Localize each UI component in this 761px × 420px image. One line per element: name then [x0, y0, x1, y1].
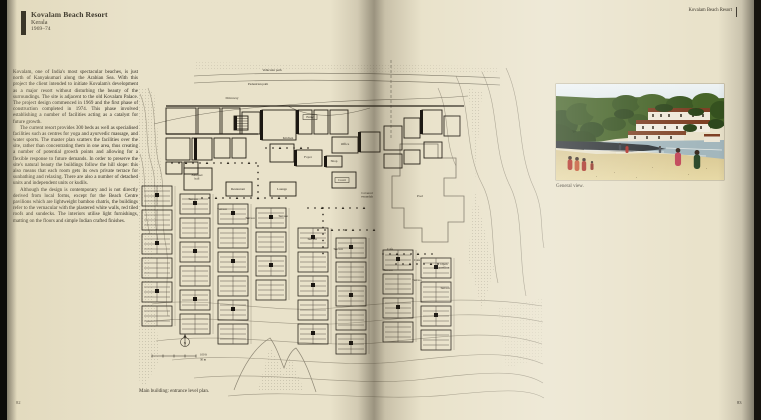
north-label: N [184, 341, 187, 345]
photo-person-figure [659, 146, 661, 153]
plan-label: Lounge [277, 187, 288, 191]
photo-person-figure [582, 158, 586, 171]
plan-label: pavilion [439, 266, 450, 270]
plan-label: Terrace [383, 268, 393, 272]
article-paragraph: Although the design is contemporary and … [13, 188, 138, 225]
site-plan-drawing: N 100 ft 30 m Vehicular pathPedestrian p… [138, 58, 550, 406]
title-accent-bar [21, 11, 26, 35]
plan-stipple-areas [138, 62, 544, 390]
header-rule [736, 7, 737, 17]
plan-label: hall [195, 177, 200, 181]
scale-metric-label: 30 m [200, 358, 207, 362]
plan-label: Terrace [440, 286, 450, 290]
plan-label: Foyer [304, 155, 313, 159]
right-page-number: 83 [737, 400, 742, 405]
plan-label: Terrace [278, 214, 288, 218]
photo-person-figure [619, 143, 621, 150]
north-arrow-icon: N [181, 334, 190, 347]
plan-label: Shop [331, 159, 338, 163]
general-view-photo [556, 84, 724, 180]
plan-label: verandah [361, 195, 373, 199]
plan-label: Pedestrian path [248, 82, 269, 86]
photo-person-figure [694, 150, 700, 169]
plan-label: Terrace [245, 216, 255, 220]
plan-label: Cafe [387, 247, 394, 251]
photo-person-figure [590, 161, 593, 170]
plan-label: Bar [343, 228, 349, 232]
plan-label: Terrace [188, 197, 198, 201]
article-paragraph: The current resort provides 300 beds as … [13, 126, 138, 188]
plan-label: Terrace [333, 247, 343, 251]
book-spread: Kovalam Beach Resort Kerala 1969–74 Kova… [0, 0, 761, 420]
plan-label: Terrace [217, 207, 227, 211]
project-title: Kovalam Beach Resort [31, 10, 108, 19]
right-edge-strip [754, 0, 761, 420]
plan-label: Terrace [412, 278, 422, 282]
photo-beach-pavilion [704, 136, 720, 142]
site-plan-svg: N 100 ft 30 m Vehicular pathPedestrian p… [138, 58, 550, 406]
plan-colonnade-dots [171, 147, 438, 265]
photo-pavilion-roof [704, 134, 720, 137]
project-location: Kerala [31, 19, 108, 26]
photo-scene [556, 84, 724, 180]
photo-person-figure [625, 144, 628, 153]
running-header: Kovalam Beach Resort [560, 8, 732, 13]
plan-label: Kitchen [283, 136, 294, 140]
photo-person-figure [575, 157, 580, 171]
plan-caption: Main building: entrance level plan. [139, 389, 209, 394]
left-edge-shadow [7, 0, 17, 420]
scale-bar: 100 ft 30 m [152, 353, 207, 362]
plan-label: Restaurant [231, 187, 245, 191]
plan-label: Pool [417, 194, 423, 198]
plan-label: Terrace [307, 237, 317, 241]
plan-labels: Vehicular pathPedestrian pathDrivewayEnt… [188, 68, 450, 290]
photo-caption: General view. [556, 184, 584, 189]
plan-label: Vehicular path [262, 68, 281, 72]
article-paragraph: Kovalam, one of India's most spectacular… [13, 70, 138, 126]
plan-label: Entry [306, 115, 314, 119]
plan-label: Court [338, 178, 346, 182]
article-text: Kovalam, one of India's most spectacular… [13, 70, 138, 225]
left-edge-strip [0, 0, 7, 420]
plan-label: Driveway [226, 96, 239, 100]
plan-label: Cafe [414, 258, 421, 262]
scale-imperial-label: 100 ft [200, 353, 207, 357]
plan-label: Office [341, 142, 350, 146]
photo-person-figure [675, 148, 681, 166]
plan-guest-wings [142, 186, 454, 354]
photo-person-figure [568, 156, 573, 170]
project-years: 1969–74 [31, 26, 108, 33]
